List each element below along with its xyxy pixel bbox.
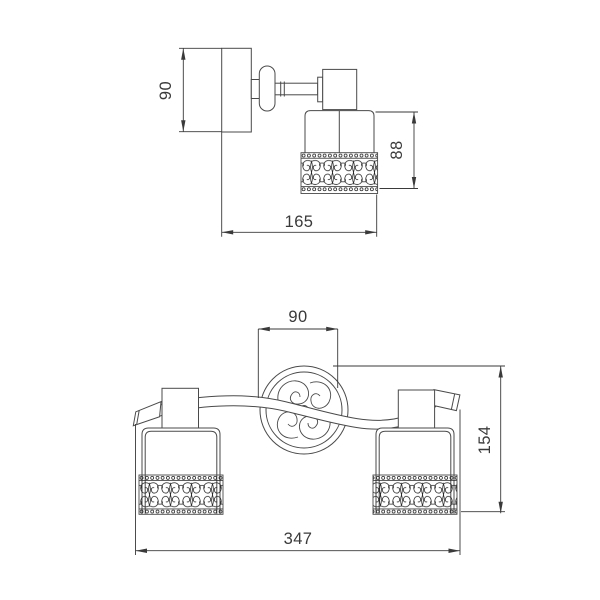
double-lamp-view: [133, 366, 460, 514]
dim-label-shade-height: 88: [388, 140, 406, 159]
lamp-holder: [323, 69, 357, 109]
arm-tube: [275, 83, 318, 95]
lamp-holder-left: [162, 388, 199, 429]
lace-band: [301, 153, 378, 194]
single-view-dimensions: 90 88 165: [157, 48, 418, 237]
dim-label-canopy-width: 90: [288, 308, 307, 326]
dim-label-double-height: 154: [476, 426, 494, 455]
dim-label-single-width: 165: [285, 213, 314, 231]
lace-band-left: [139, 475, 223, 514]
dim-label-plate-height: 90: [157, 81, 175, 100]
lamp-dimension-drawing: 90 88 165: [0, 0, 600, 600]
technical-drawing-sheet: 90 88 165: [0, 0, 600, 600]
lamp-holder-right: [398, 390, 434, 429]
lace-band-right: [373, 475, 457, 514]
dim-label-double-width: 347: [284, 530, 313, 548]
swivel-joint: [259, 66, 275, 111]
wall-plate: [222, 48, 252, 132]
arm-flange: [318, 77, 323, 102]
single-lamp-view: [222, 48, 378, 193]
